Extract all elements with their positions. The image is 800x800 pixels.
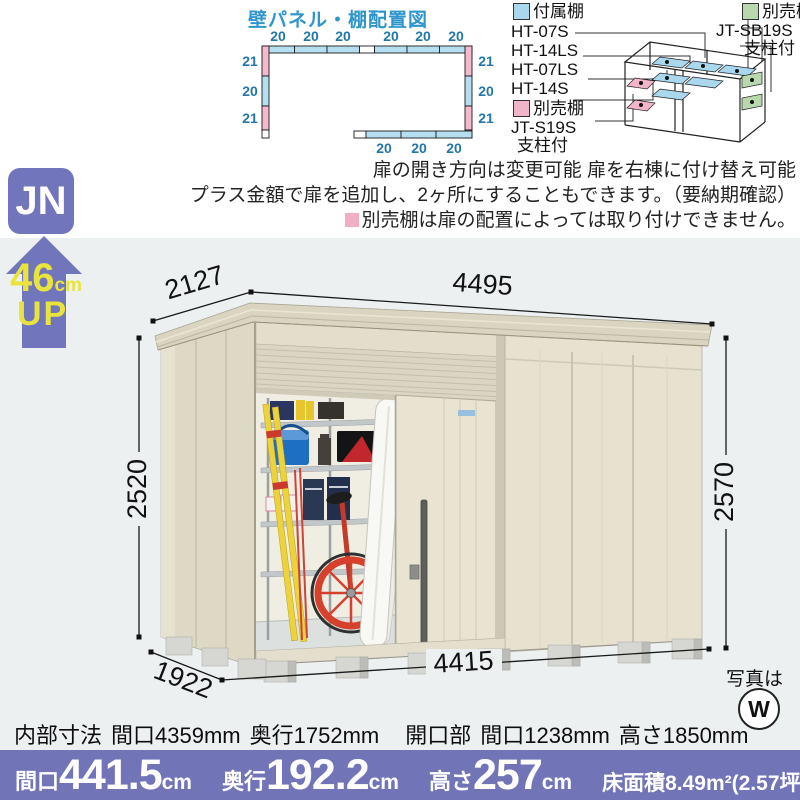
door-lock <box>410 565 419 579</box>
dim-bottom-width: 4415 <box>433 645 495 679</box>
dim-top-depth: 2127 <box>161 259 227 305</box>
photo-note-label: 写真は <box>726 664 783 691</box>
floor-area: 床面積8.49m²(2.57坪) <box>602 767 800 797</box>
product-spec-image: 壁パネル・棚配置図 <box>0 0 800 800</box>
opening-height: 高さ1850mm <box>619 718 749 750</box>
dim-left-height: 2520 <box>122 459 152 519</box>
internal-width: 間口4359mm <box>111 718 241 750</box>
size-depth: 奥行 192.2 cm <box>222 750 399 800</box>
dim-right-height: 2570 <box>709 462 739 522</box>
shed-door <box>396 395 496 656</box>
internal-depth: 奥行1752mm <box>250 718 380 750</box>
shed-illustration: 2127 4495 2520 2570 4415 1922 <box>0 0 800 800</box>
dim-top-width: 4495 <box>452 267 514 301</box>
internal-label: 内部寸法 <box>14 718 102 750</box>
shed-right-wall <box>496 334 702 654</box>
internal-dimensions-row: 内部寸法 間口4359mm 奥行1752mm 開口部 間口1238mm 高さ18… <box>0 718 734 750</box>
shed-side-wall <box>161 321 255 667</box>
opening-width: 間口1238mm <box>480 718 610 750</box>
size-height: 高さ 257 cm <box>429 750 572 800</box>
opening-label: 開口部 <box>405 718 471 750</box>
door-handle <box>421 500 427 648</box>
size-width: 間口 441.5 cm <box>15 750 192 800</box>
shed-shutter <box>256 322 505 406</box>
size-summary-bar: 間口 441.5 cm 奥行 192.2 cm 高さ 257 cm 床面積8.4… <box>0 750 800 800</box>
